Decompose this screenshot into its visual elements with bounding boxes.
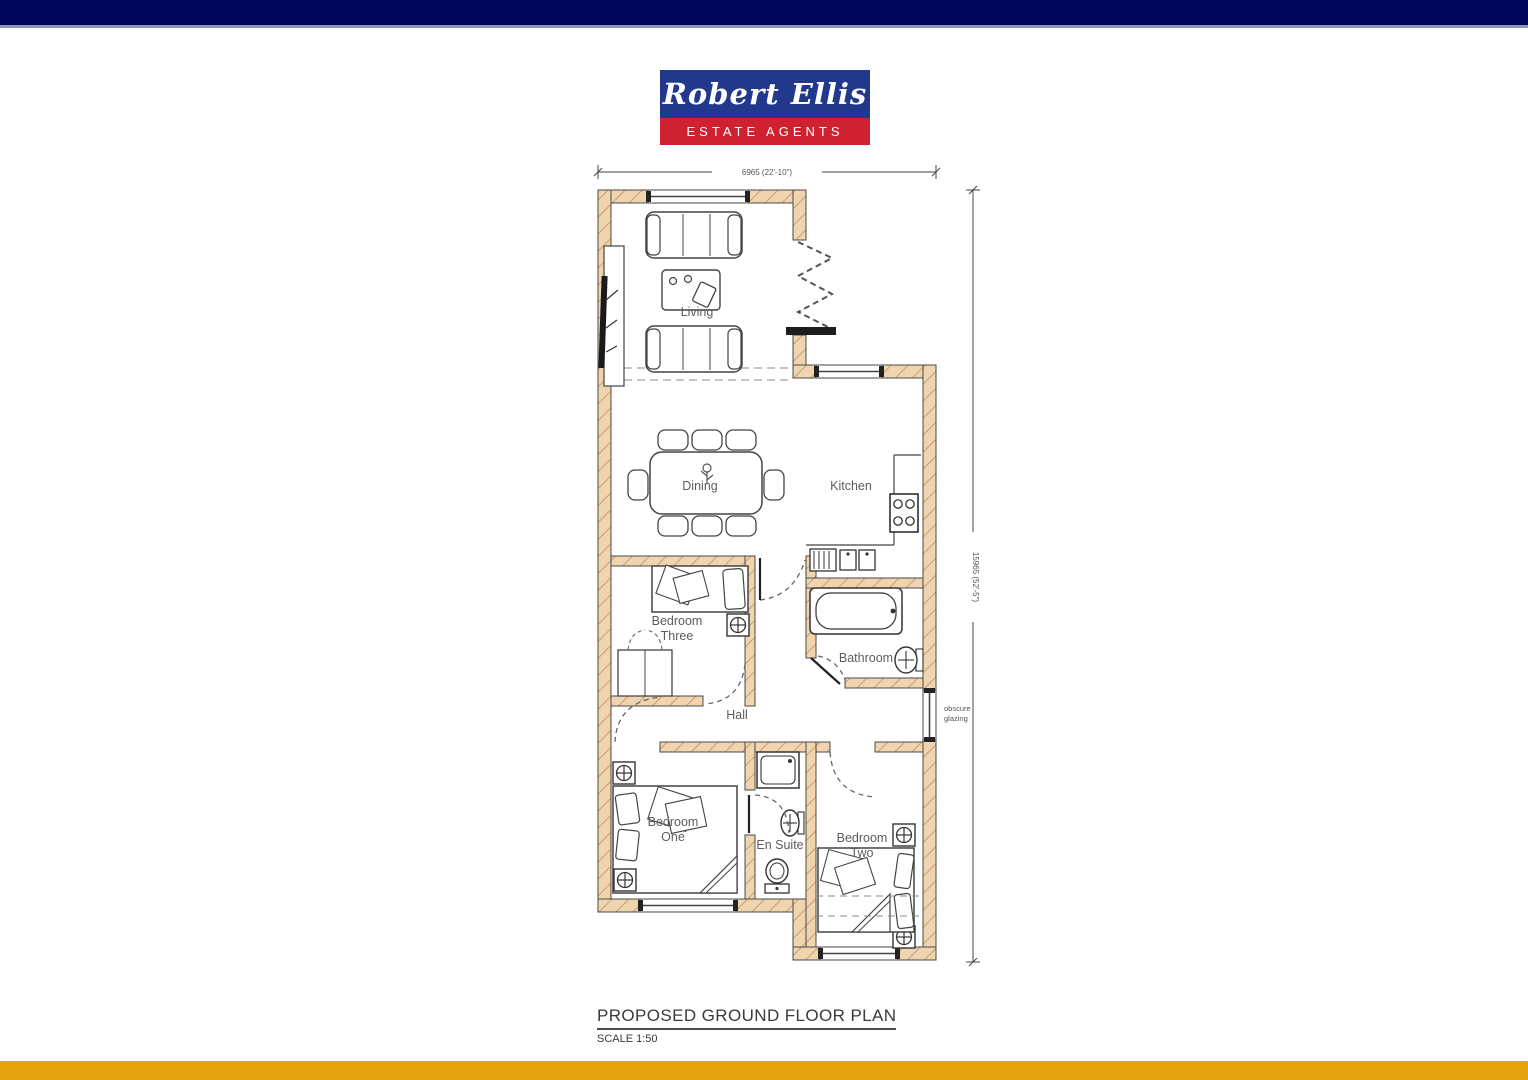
chair-icon: [726, 430, 756, 450]
radiator-icon: [614, 869, 636, 891]
chair-icon: [692, 516, 722, 536]
room-kitchen: Kitchen: [806, 455, 921, 571]
logo-tagline-panel: ESTATE AGENTS: [660, 118, 870, 145]
room-label-kitchen: Kitchen: [830, 479, 872, 493]
window-kitchen: [814, 365, 884, 378]
dimension-height-label: 15965 (52'-5"): [971, 552, 980, 603]
kitchen-sink-icon: [810, 549, 875, 571]
glazing-note-line2: glazing: [944, 714, 968, 723]
chair-icon: [628, 470, 648, 500]
room-bedroom-one: Bedroom One: [613, 762, 737, 893]
footer-bar: [0, 1061, 1528, 1080]
toilet-icon: [765, 859, 789, 893]
room-label-hall: Hall: [726, 708, 748, 722]
logo: Robert Ellis ESTATE AGENTS: [660, 70, 870, 145]
room-label-bedroom-three: Bedroom: [652, 614, 703, 628]
window-living: [646, 190, 750, 203]
basin-icon: [895, 647, 923, 673]
door-leaf: [811, 658, 840, 684]
chair-icon: [764, 470, 784, 500]
room-en-suite: En Suite: [756, 752, 804, 893]
chair-icon: [658, 516, 688, 536]
radiator-icon: [727, 614, 749, 636]
shower-icon: [757, 752, 799, 788]
title-block: PROPOSED GROUND FLOOR PLAN SCALE 1:50: [597, 1006, 896, 1045]
bifold-door-icon: [786, 242, 836, 335]
room-dining: Dining: [628, 430, 784, 536]
door-arc: [705, 664, 745, 704]
glazing-note-line1: obscure: [944, 704, 971, 713]
sofa-icon: [646, 326, 742, 372]
coffee-table-icon: [662, 270, 720, 310]
radiator-icon: [893, 824, 915, 846]
floor-plan: Living Dining: [560, 150, 1010, 990]
header-bar: [0, 0, 1528, 28]
room-label-bedroom-two: Bedroom: [837, 831, 888, 845]
logo-name: Robert Ellis: [663, 77, 867, 111]
chair-icon: [692, 430, 722, 450]
glazing-note: obscure glazing: [944, 704, 971, 723]
chair-icon: [726, 516, 756, 536]
room-bathroom: Bathroom: [810, 588, 923, 673]
room-label-living: Living: [681, 305, 714, 319]
door-arc: [760, 560, 805, 600]
window-obscure: [923, 688, 936, 742]
chair-icon: [658, 430, 688, 450]
room-label-en-suite: En Suite: [756, 838, 803, 852]
single-bed-icon: [652, 565, 748, 612]
room-label-bedroom-one: One: [661, 830, 685, 844]
dimension-top: 6965 (22'-10"): [594, 165, 940, 179]
window-bedroom-two: [818, 947, 900, 960]
room-label-bedroom-three: Three: [661, 629, 694, 643]
room-hall: Hall: [726, 708, 748, 722]
room-label-bedroom-one: Bedroom: [648, 815, 699, 829]
window-bedroom-one: [638, 899, 738, 912]
hob-icon: [890, 494, 918, 532]
logo-tagline: ESTATE AGENTS: [687, 124, 844, 139]
plan-title: PROPOSED GROUND FLOOR PLAN: [597, 1006, 896, 1030]
dimension-width-label: 6965 (22'-10"): [742, 168, 793, 177]
room-label-dining: Dining: [682, 479, 717, 493]
plan-scale: SCALE 1:50: [597, 1033, 896, 1045]
double-bed-icon: [818, 848, 914, 932]
room-bedroom-three: Bedroom Three: [618, 565, 749, 696]
radiator-icon: [613, 762, 635, 784]
door-arc: [830, 752, 875, 797]
room-bedroom-two: Bedroom Two: [816, 824, 923, 948]
room-label-bathroom: Bathroom: [839, 651, 893, 665]
logo-name-panel: Robert Ellis: [660, 70, 870, 118]
room-label-bedroom-two: Two: [851, 846, 874, 860]
sofa-icon: [646, 212, 742, 258]
dimension-right: 15965 (52'-5"): [966, 186, 980, 966]
page: Robert Ellis ESTATE AGENTS: [0, 0, 1528, 1080]
bath-icon: [810, 588, 902, 634]
